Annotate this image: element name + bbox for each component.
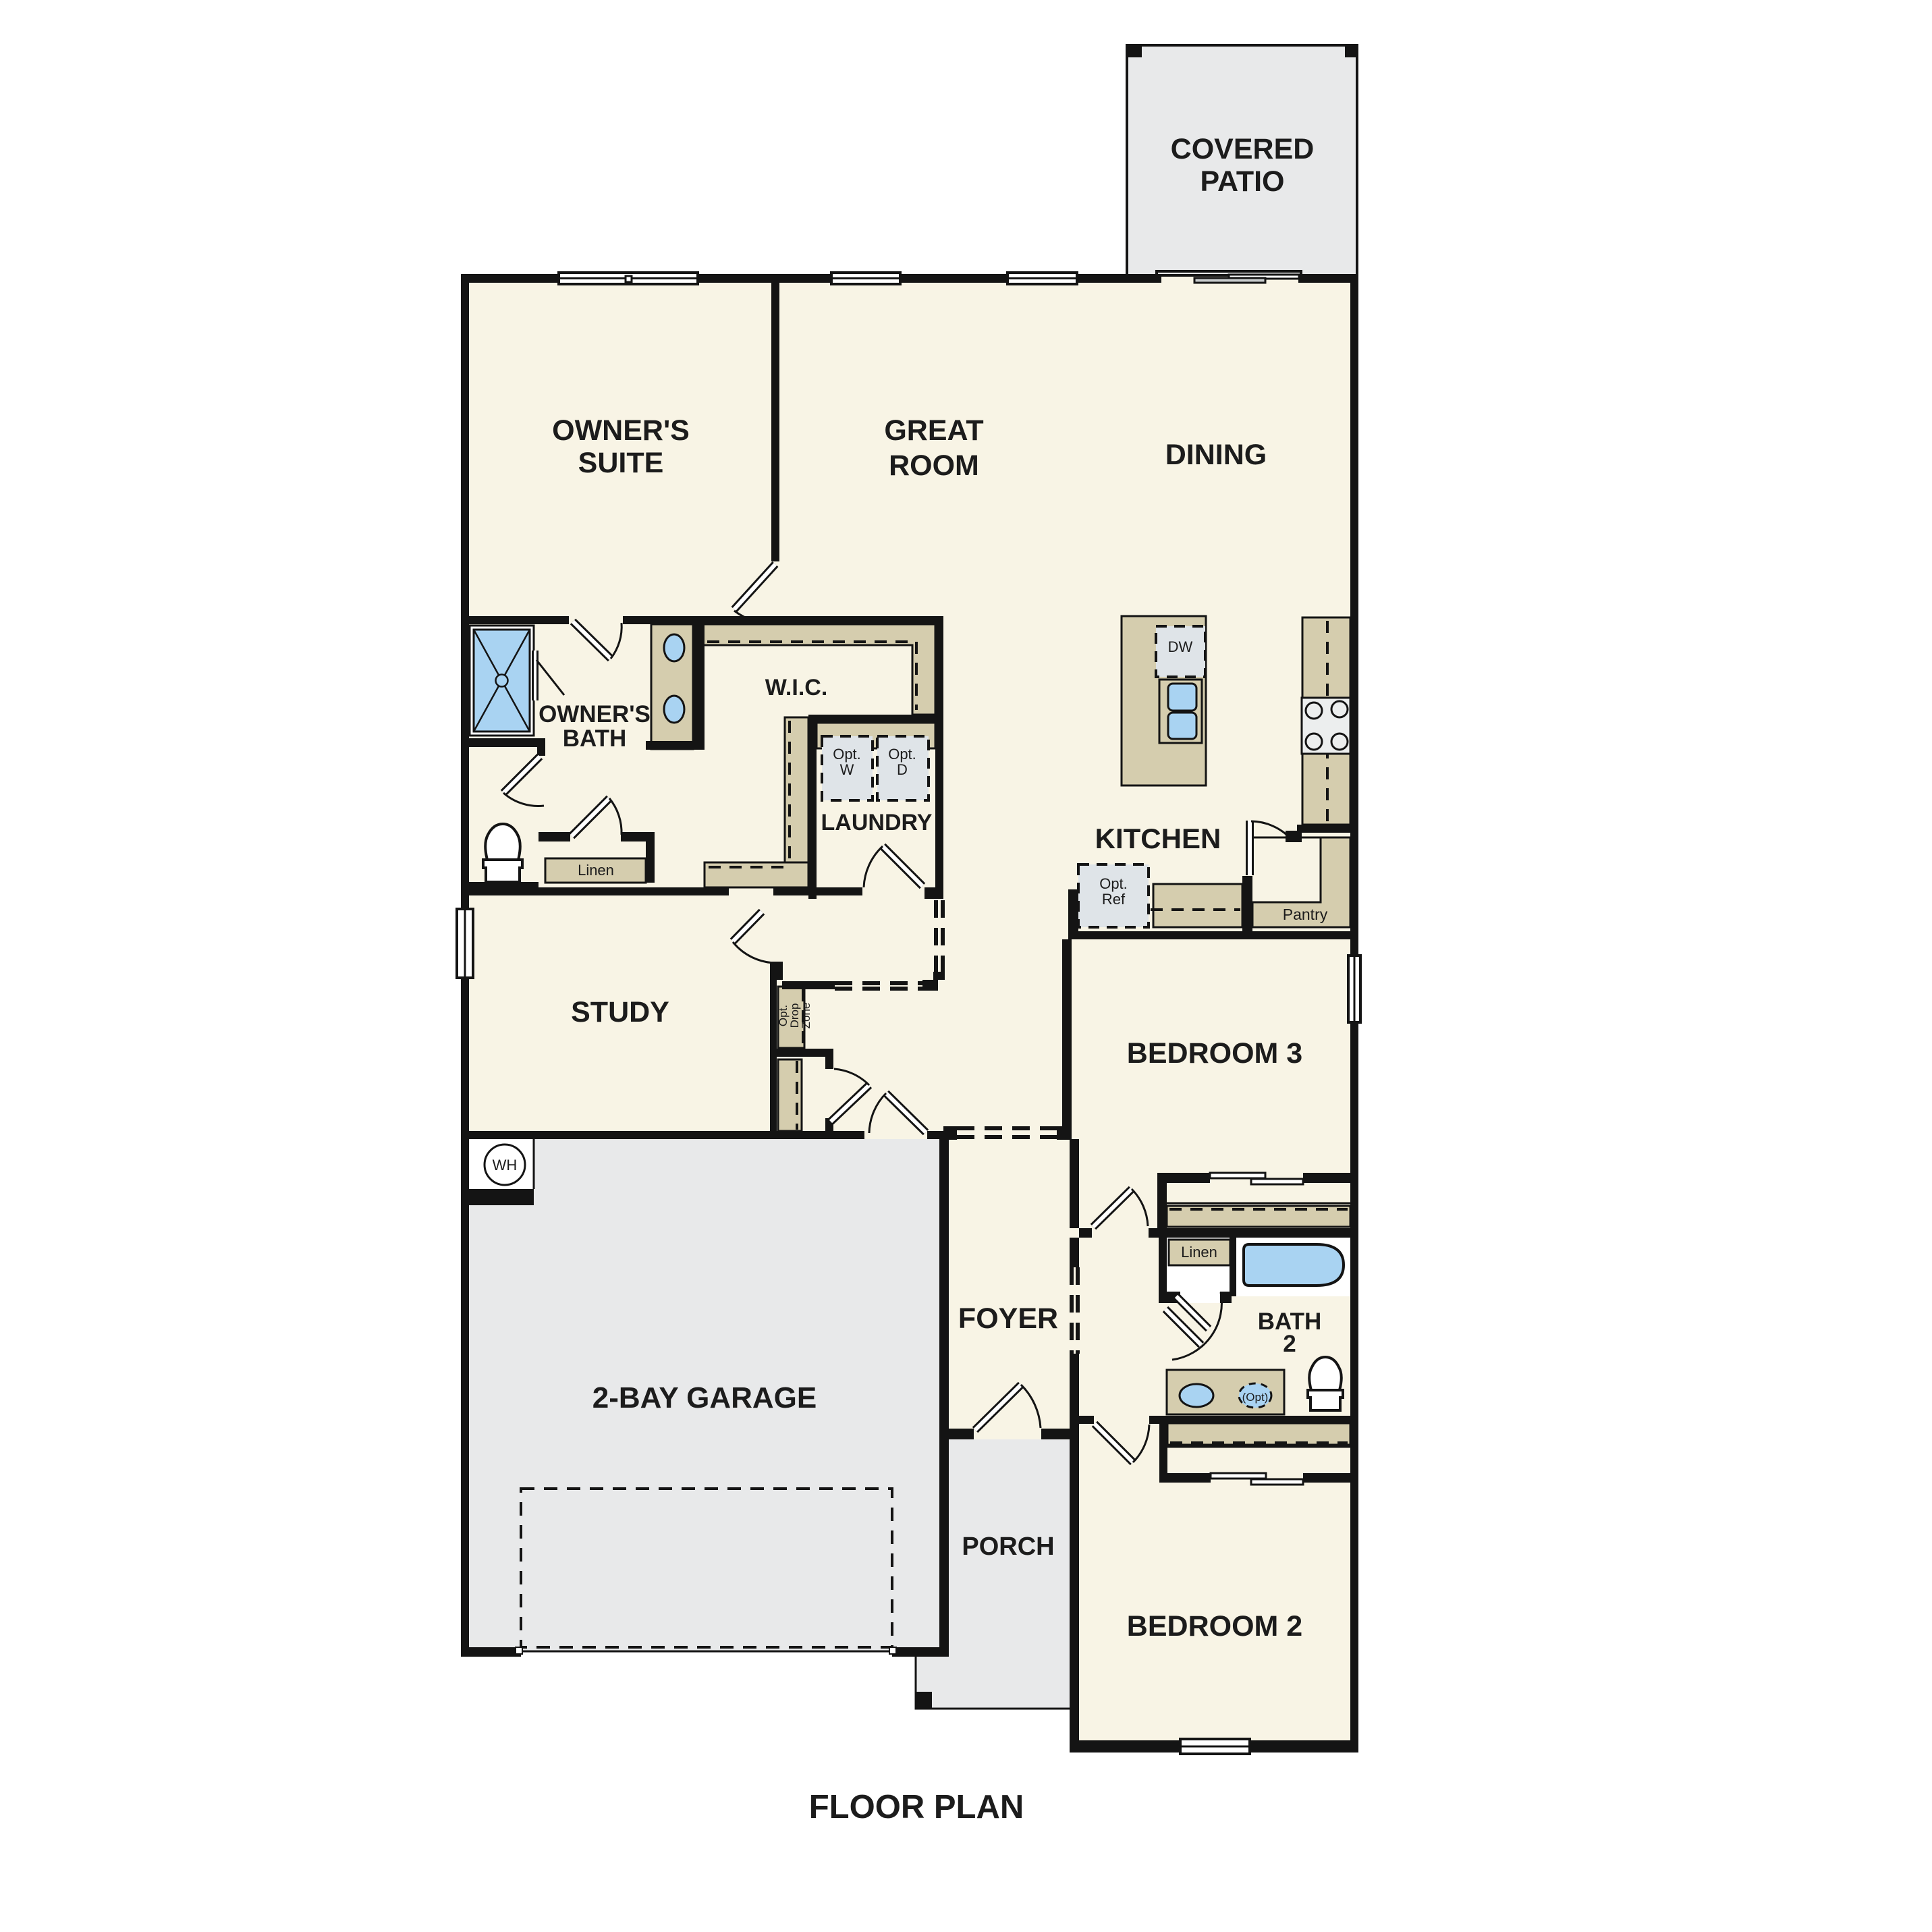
svg-text:Ref: Ref [1102, 891, 1126, 908]
svg-text:LAUNDRY: LAUNDRY [821, 810, 933, 835]
svg-text:W: W [840, 761, 854, 778]
svg-text:D: D [897, 761, 908, 778]
svg-text:PATIO: PATIO [1200, 165, 1284, 198]
svg-text:COVERED: COVERED [1171, 133, 1315, 165]
svg-text:STUDY: STUDY [571, 996, 669, 1028]
svg-text:FOYER: FOYER [958, 1302, 1058, 1335]
svg-text:Opt.DropZone: Opt.DropZone [777, 1003, 812, 1029]
svg-text:Linen: Linen [578, 862, 614, 879]
svg-text:SUITE: SUITE [578, 447, 664, 479]
svg-text:Opt.: Opt. [833, 746, 861, 763]
svg-text:W.I.C.: W.I.C. [765, 675, 828, 700]
svg-text:BEDROOM 3: BEDROOM 3 [1127, 1037, 1302, 1070]
svg-text:DW: DW [1168, 638, 1193, 655]
svg-text:KITCHEN: KITCHEN [1095, 823, 1221, 854]
svg-text:PORCH: PORCH [962, 1533, 1054, 1561]
svg-text:2-BAY GARAGE: 2-BAY GARAGE [592, 1381, 817, 1414]
svg-text:OWNER'S: OWNER'S [552, 414, 690, 447]
svg-text:ROOM: ROOM [889, 449, 979, 482]
svg-text:BEDROOM 2: BEDROOM 2 [1127, 1610, 1302, 1643]
svg-text:GREAT: GREAT [884, 414, 983, 447]
svg-text:Opt.: Opt. [1099, 875, 1128, 892]
svg-text:BATH: BATH [563, 725, 627, 752]
svg-text:2: 2 [1283, 1331, 1296, 1357]
svg-text:DINING: DINING [1165, 439, 1267, 471]
svg-text:OWNER'S: OWNER'S [539, 701, 651, 727]
svg-text:(Opt): (Opt) [1242, 1391, 1269, 1404]
svg-text:Opt.: Opt. [888, 746, 916, 763]
svg-text:FLOOR PLAN: FLOOR PLAN [809, 1789, 1024, 1825]
svg-text:Pantry: Pantry [1283, 906, 1328, 923]
svg-text:Linen: Linen [1181, 1244, 1217, 1261]
svg-text:WH: WH [493, 1157, 518, 1174]
